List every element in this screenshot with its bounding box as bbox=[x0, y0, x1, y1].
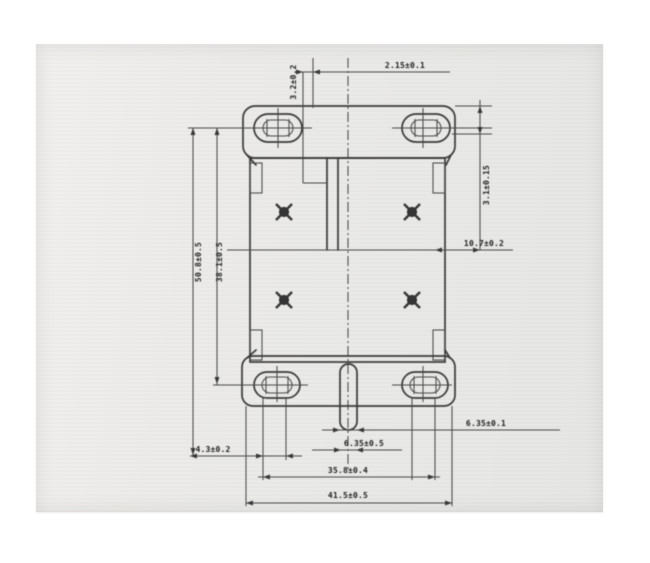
hole-bottom-right bbox=[404, 292, 420, 308]
top-right-mounting-slot bbox=[392, 108, 492, 148]
scanned-drawing-page: 2.15±0.1 3.2±0.2 3.1±0.15 10.7±0.2 50.8±… bbox=[0, 0, 650, 563]
bottom-left-mounting-slot bbox=[213, 366, 308, 402]
dim-label-overall-width: 41.5±0.5 bbox=[328, 491, 368, 500]
bracket-technical-drawing: 2.15±0.1 3.2±0.2 3.1±0.15 10.7±0.2 50.8±… bbox=[0, 0, 650, 563]
dim-label-slot-span: 35.8±0.4 bbox=[328, 466, 368, 475]
dim-label-right-mid: 10.7±0.2 bbox=[464, 239, 504, 248]
dim-label-left-outer: 50.8±0.5 bbox=[194, 242, 203, 282]
side-tab-top-right bbox=[433, 163, 445, 193]
dim-label-bottom-left: 4.3±0.2 bbox=[195, 445, 230, 454]
side-tab-top-left bbox=[250, 163, 262, 193]
hole-top-right bbox=[404, 204, 420, 220]
dim-label-left-inner: 38.1±0.5 bbox=[215, 242, 224, 282]
dimension-labels: 2.15±0.1 3.2±0.2 3.1±0.15 10.7±0.2 50.8±… bbox=[194, 61, 506, 500]
bottom-right-mounting-slot bbox=[392, 366, 452, 402]
center-neck-feature bbox=[303, 58, 338, 250]
top-left-mounting-slot bbox=[188, 108, 312, 148]
dim-label-tab-right: 6.35±0.1 bbox=[466, 419, 506, 428]
dim-label-tab-center: 6.35±0.5 bbox=[344, 439, 384, 448]
dim-label-top-offset: 3.2±0.2 bbox=[289, 64, 298, 99]
hole-bottom-left bbox=[276, 292, 292, 308]
dim-label-top: 2.15±0.1 bbox=[385, 61, 425, 70]
hole-top-left bbox=[276, 204, 292, 220]
dim-label-right-vertical: 3.1±0.15 bbox=[482, 165, 491, 205]
